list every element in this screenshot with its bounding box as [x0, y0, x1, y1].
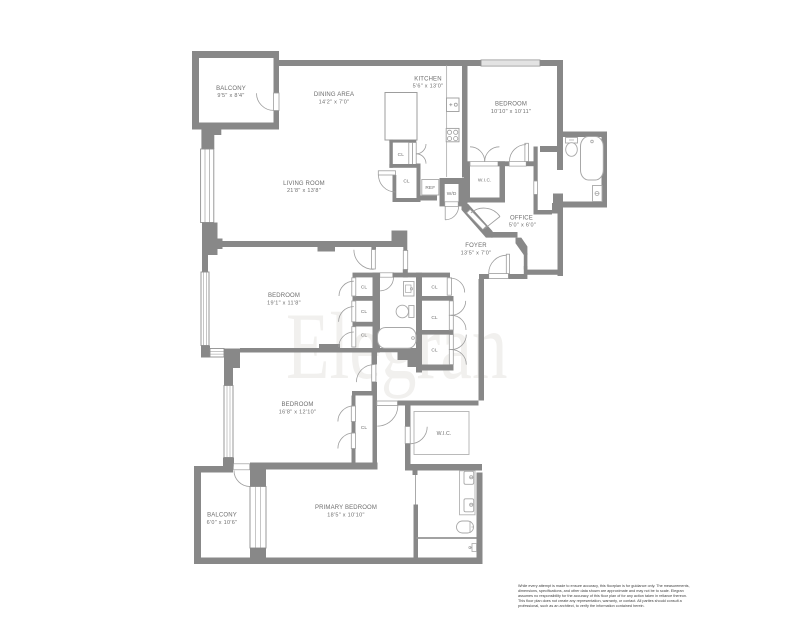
svg-text:OFFICE: OFFICE [510, 216, 533, 222]
svg-text:CL: CL [431, 348, 438, 354]
svg-text:LIVING ROOM: LIVING ROOM [283, 181, 325, 187]
svg-text:5'0" x 6'0": 5'0" x 6'0" [509, 223, 536, 229]
svg-text:REF: REF [425, 185, 435, 191]
svg-text:9'5" x 8'4": 9'5" x 8'4" [217, 93, 244, 99]
svg-text:CL: CL [361, 309, 368, 315]
svg-text:14'2" x 7'0": 14'2" x 7'0" [319, 100, 350, 106]
svg-text:KITCHEN: KITCHEN [414, 77, 441, 83]
svg-text:CL: CL [431, 285, 438, 291]
svg-text:CL: CL [398, 152, 405, 158]
svg-text:CL: CL [403, 179, 410, 185]
svg-text:BEDROOM: BEDROOM [281, 402, 313, 408]
svg-text:18'5" x 10'10": 18'5" x 10'10" [327, 513, 364, 519]
svg-text:19'1" x 11'8": 19'1" x 11'8" [267, 301, 301, 307]
svg-text:CL: CL [361, 425, 368, 431]
svg-text:BALCONY: BALCONY [216, 86, 246, 92]
svg-text:FOYER: FOYER [465, 243, 487, 249]
svg-text:W/D: W/D [447, 191, 457, 197]
svg-text:10'10" x 10'11": 10'10" x 10'11" [491, 109, 531, 115]
svg-text:21'8" x 13'8": 21'8" x 13'8" [287, 188, 321, 194]
svg-text:BALCONY: BALCONY [207, 513, 237, 519]
svg-text:5'6" x 13'0": 5'6" x 13'0" [413, 84, 444, 90]
svg-text:W.I.C.: W.I.C. [437, 431, 452, 437]
svg-text:CL: CL [431, 315, 438, 321]
svg-text:16'8" x 12'10": 16'8" x 12'10" [279, 410, 316, 416]
svg-text:CL: CL [361, 333, 368, 339]
svg-text:13'5" x 7'0": 13'5" x 7'0" [461, 251, 492, 257]
svg-text:BEDROOM: BEDROOM [268, 293, 300, 299]
svg-text:PRIMARY BEDROOM: PRIMARY BEDROOM [315, 505, 377, 511]
svg-text:6'0" x 10'6": 6'0" x 10'6" [207, 520, 238, 526]
svg-text:W.I.C.: W.I.C. [478, 178, 492, 184]
svg-text:CL: CL [361, 285, 368, 291]
svg-text:DINING AREA: DINING AREA [314, 92, 354, 98]
svg-text:BEDROOM: BEDROOM [495, 102, 527, 108]
